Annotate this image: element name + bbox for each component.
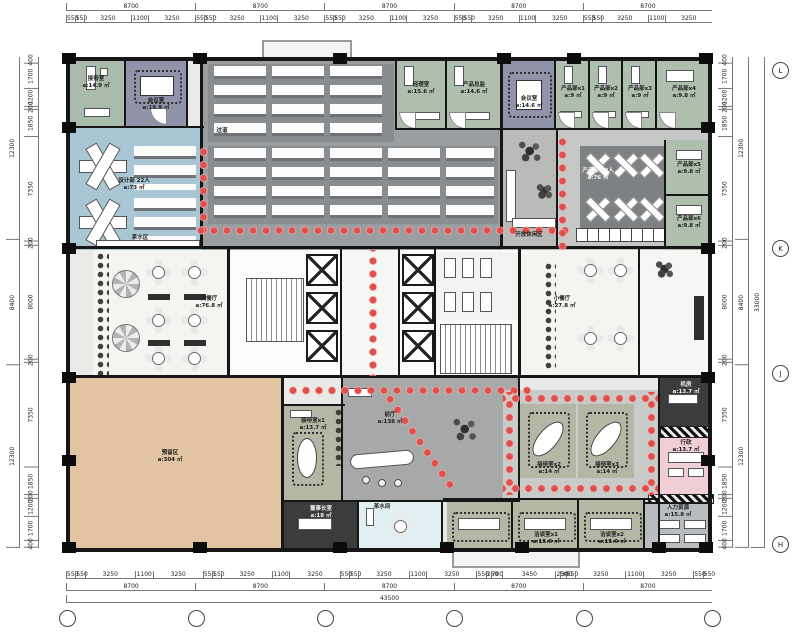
dim-label: 200 (718, 495, 732, 499)
dim-label: 12300 (735, 57, 748, 240)
dim-label: 1700 (24, 64, 38, 89)
round-table (188, 352, 201, 365)
dim-label: 400 (718, 541, 732, 548)
round-table (152, 314, 165, 327)
desk (668, 468, 684, 477)
dim-label: 550 (462, 15, 471, 22)
plant-strip (96, 252, 109, 376)
wall (621, 60, 623, 130)
circulation-dots-west-vertical (197, 146, 210, 236)
dim-label: 550 (333, 15, 342, 22)
room-area: a:76 ㎡ (588, 175, 609, 181)
room-area: a:14.6 ㎡ (516, 103, 543, 109)
dim-label: 3250 (342, 15, 389, 22)
staircase-west (246, 278, 304, 342)
wall (434, 249, 436, 375)
circulation-dots-product-vertical (556, 138, 569, 250)
dim-label: 1100 (390, 15, 407, 22)
room-label-corridor: 过道 (216, 128, 227, 135)
dim-label: 8700 (66, 583, 195, 590)
wall (518, 249, 521, 375)
room-area: a:14 ㎡ (597, 469, 618, 475)
toilet-stall (480, 258, 492, 278)
conference-table (140, 76, 174, 96)
room-label-px3: 产品部x3a:9 ㎡ (628, 86, 652, 100)
chair (362, 476, 370, 484)
dim-label: 550 (75, 571, 84, 578)
dim-label: 1100 (260, 15, 277, 22)
dim-label: 3250 (665, 15, 712, 22)
axis-bubble-H: H (772, 536, 789, 553)
room-name: 会议室 (148, 98, 165, 104)
dim-right-majors: 12300840012300 (735, 57, 749, 548)
dim-label: 43500 (66, 595, 712, 602)
column (62, 243, 76, 254)
wall (357, 500, 359, 548)
wall (445, 60, 447, 130)
dim-label: 550 (340, 571, 349, 578)
desk (598, 66, 607, 84)
column (567, 53, 581, 64)
vip-dots-left (503, 392, 516, 495)
dim-label: 550 (476, 571, 485, 578)
dim-label: 550 (195, 15, 204, 22)
wall (658, 378, 660, 548)
dim-label: 400 (24, 541, 38, 548)
oval-table (297, 438, 317, 478)
sofa (462, 112, 490, 120)
room-area: a:15.6 ㎡ (533, 539, 560, 545)
toilet-stall (480, 292, 492, 312)
room-label-chairman: 董事长室a:18 ㎡ (310, 506, 332, 520)
desk-column (272, 66, 324, 140)
dim-label: 8700 (324, 3, 453, 10)
room-label-server: 机房a:13.7 ㎡ (673, 382, 700, 396)
dim-label: 7350 (24, 137, 38, 242)
column (62, 372, 76, 383)
room-name: 接待室x2 (537, 462, 561, 468)
wall (645, 502, 712, 504)
wall (577, 500, 579, 548)
room-name: 机房 (680, 382, 691, 388)
axis-bubble-K: K (772, 240, 789, 257)
dim-label: 8700 (454, 3, 583, 10)
elevator (306, 330, 338, 362)
room-label-dining-large: 大餐厅a:76.8 ㎡ (196, 296, 223, 310)
dim-label: 3250 (535, 15, 582, 22)
room-name: 产品部 18人 (582, 168, 614, 174)
dim-right-details: 4001700120020018507350200800020073501850… (718, 57, 733, 548)
desk (688, 468, 704, 477)
dim-label: 550 (592, 15, 601, 22)
room-label-px6: 产品部x6a:9.8 ㎡ (677, 216, 701, 230)
room-name: 预留区 (162, 450, 179, 456)
room-label-meeting-a: 会议室a:19.9 ㎡ (143, 98, 170, 112)
plant-cluster (446, 412, 482, 446)
dim-label: 8700 (583, 3, 712, 10)
desk (658, 520, 680, 529)
umbrella-table (112, 324, 140, 352)
floor-plan: 87008700870087008700 5505503250110032505… (0, 0, 800, 644)
room-area: a:14.9 ㎡ (83, 83, 110, 89)
elevator (306, 292, 338, 324)
dim-label: 3250 (148, 15, 195, 22)
column (701, 122, 715, 133)
wall (283, 404, 345, 406)
dim-label: 8700 (583, 583, 712, 590)
room-name: 大餐厅 (201, 296, 218, 302)
dim-label: 7350 (718, 363, 732, 468)
room-area: a:15.8 ㎡ (665, 512, 692, 518)
room-area: a:76.8 ㎡ (196, 303, 223, 309)
dim-label: 1100 (135, 571, 153, 578)
room-name: 小餐厅 (554, 296, 571, 302)
chair (100, 68, 108, 76)
dim-label: 550 (703, 571, 712, 578)
room-area: a:9 ㎡ (631, 93, 648, 99)
room-name: 产品部x6 (677, 216, 701, 222)
dim-label: 8700 (195, 583, 324, 590)
dim-label: 550 (66, 571, 75, 578)
dim-label: 550 (454, 15, 463, 22)
chair (394, 479, 402, 487)
desk (676, 150, 702, 160)
dim-label: 550 (324, 15, 333, 22)
room-name: 产品部x4 (672, 86, 696, 92)
dim-label: 8700 (66, 3, 195, 10)
room-label-px4: 产品部x4a:9.8 ㎡ (672, 86, 696, 100)
column (515, 542, 529, 553)
dim-right-total: 33000 (751, 57, 765, 548)
round-table (152, 352, 165, 365)
column (333, 542, 347, 553)
long-table (524, 518, 566, 530)
room-name: 接待室x1 (301, 418, 325, 424)
dim-label: 1100 (131, 15, 148, 22)
wall (395, 60, 397, 130)
x-desk (612, 152, 638, 178)
column (699, 542, 713, 553)
wall (66, 246, 712, 249)
toilet-stall (444, 258, 456, 278)
desk (564, 66, 573, 84)
room-area: a:14.6 ㎡ (461, 89, 488, 95)
axis-bubble-L: L (772, 62, 789, 79)
room-name: 会议室 (521, 96, 538, 102)
room-label-px2: 产品部x2a:9 ㎡ (594, 86, 618, 100)
room-area: a:15.6 ㎡ (599, 539, 626, 545)
room-area: a:18 ㎡ (311, 513, 332, 519)
room-area: a:13.7 ㎡ (300, 425, 327, 431)
bench (694, 296, 704, 340)
room-name: 人力资源 (667, 505, 689, 511)
column (701, 243, 715, 254)
sofa (414, 112, 440, 120)
round-table (614, 264, 627, 277)
room-area: a:73 ㎡ (124, 185, 145, 191)
column (699, 53, 713, 64)
dim-label: 3250 (85, 571, 135, 578)
dim-label: 3250 (406, 15, 453, 22)
room-area: a:9.8 ㎡ (672, 93, 695, 99)
plant-strip (544, 262, 556, 370)
wall (398, 249, 400, 375)
lounge-bench (184, 340, 206, 346)
wall (124, 60, 126, 126)
room-label-talk2: 洽谈室x2a:15.6 ㎡ (599, 532, 626, 546)
axis-bubble (576, 610, 593, 627)
x-desk (638, 196, 664, 222)
dim-label: 400 (718, 57, 732, 64)
sofa (84, 108, 110, 117)
lounge-bench (148, 294, 170, 300)
room-area: a:27.8 ㎡ (549, 303, 576, 309)
room-area: a:13.7 ㎡ (673, 447, 700, 453)
x-desk (638, 152, 664, 178)
room-label-manager: 经理室a:15.6 ㎡ (408, 82, 435, 96)
room-name: 产品部x1 (561, 86, 585, 92)
room-area: a:304 ㎡ (158, 457, 183, 463)
room-label-px5: 产品部x5a:9.8 ㎡ (677, 162, 701, 176)
room-area: a:19.9 ㎡ (143, 105, 170, 111)
wall (340, 249, 342, 375)
column (62, 122, 76, 133)
dim-left-majors: 12300840012300 (6, 57, 20, 548)
toilet-stall (462, 258, 474, 278)
dim-label: 1100 (625, 571, 643, 578)
room-name: 经理室 (413, 82, 430, 88)
axis-bubble (704, 610, 721, 627)
long-table (458, 518, 500, 530)
wall (588, 60, 590, 130)
dim-label: 1850 (718, 110, 732, 137)
dim-label: 3250 (213, 15, 260, 22)
room-label-dining-small: 小餐厅a:27.8 ㎡ (549, 296, 576, 310)
cabinet-row (576, 228, 666, 242)
wall (638, 249, 640, 375)
cabinet-hatch (660, 426, 712, 438)
wall (66, 375, 712, 378)
wall (443, 498, 658, 500)
vip-dots-bottom (503, 482, 658, 495)
dim-label: 8700 (195, 3, 324, 10)
dim-label: 550 (212, 571, 221, 578)
vip-dots-top (503, 392, 658, 405)
room-area: a:14 ㎡ (539, 469, 560, 475)
round-table (188, 314, 201, 327)
room-label-design: 设计部 22人a:73 ㎡ (118, 178, 150, 192)
dim-label: 550 (566, 571, 575, 578)
dim-label: 12300 (6, 365, 19, 548)
toilet-stall (444, 292, 456, 312)
room-label-leisure: 开放休闲区 (515, 232, 543, 239)
dim-bottom-total: 43500 (66, 591, 712, 603)
round-table (394, 520, 407, 533)
dim-label: 8000 (24, 246, 38, 360)
room-label-px1: 产品部x1a:9 ㎡ (561, 86, 585, 100)
axis-bubble-J: J (772, 365, 789, 382)
dim-label: 3250 (84, 15, 131, 22)
axis-bubble (446, 610, 463, 627)
dim-label: 8700 (324, 583, 453, 590)
wall (655, 60, 657, 130)
dim-label: 1200 (718, 499, 732, 517)
wall (664, 140, 666, 247)
room-name: 产品部x3 (628, 86, 652, 92)
table (666, 70, 694, 82)
room-label-meeting-b: 会议室a:14.6 ㎡ (516, 96, 543, 110)
column (497, 53, 511, 64)
room-label-hr: 人力资源a:15.8 ㎡ (665, 505, 692, 519)
room-area: a:9 ㎡ (564, 93, 581, 99)
dim-label: 700 (491, 571, 503, 578)
desk-column (330, 66, 382, 140)
wall (66, 548, 712, 552)
room-name: 董事长室 (310, 506, 332, 512)
room-label-rx2: 接待室x2a:14 ㎡ (537, 462, 561, 476)
wall (66, 126, 204, 128)
room-label-director: 产品总监a:14.6 ㎡ (461, 82, 488, 96)
plant-cluster (652, 258, 676, 280)
room-label-teabar: 茶水区 (132, 235, 149, 242)
room-name: 产品部x5 (677, 162, 701, 168)
dim-label: 550 (583, 15, 592, 22)
room-name: 接待室x3 (595, 462, 619, 468)
room-label-hall: 前厅a:138 ㎡ (378, 412, 403, 426)
dim-label: 33000 (751, 57, 764, 548)
long-table (590, 518, 632, 530)
dim-label: 1200 (24, 499, 38, 517)
column (193, 542, 207, 553)
dim-label: 8000 (718, 246, 732, 360)
elevator (402, 330, 434, 362)
circulation-dots-top-horizontal (197, 224, 569, 237)
room-name: 过道 (216, 128, 227, 134)
dim-label: 7350 (718, 137, 732, 242)
dim-label: 3250 (153, 571, 203, 578)
axis-bubble (317, 610, 334, 627)
room-name: 设计部 22人 (118, 178, 150, 184)
room-name: 洽谈室x2 (600, 532, 624, 538)
column (701, 372, 715, 383)
room-name: 茶水间 (374, 504, 391, 510)
column (652, 542, 666, 553)
dim-label: 550 (204, 15, 213, 22)
room-area: a:9.8 ㎡ (677, 169, 700, 175)
room-area: a:9 ㎡ (597, 93, 614, 99)
round-table (614, 332, 627, 345)
dim-label: 200 (24, 495, 38, 499)
staircase-east (440, 324, 512, 374)
circulation-dots-hall-horizontal (286, 384, 534, 397)
dim-label: 3450 (502, 571, 555, 578)
circulation-dots-lobby-vertical (366, 250, 380, 376)
dim-label: 8400 (735, 240, 748, 365)
dim-label: 3250 (426, 571, 476, 578)
wall (66, 57, 712, 61)
plant-cluster (534, 182, 554, 200)
column (62, 542, 76, 553)
dim-label: 3250 (601, 15, 648, 22)
vip-dots-right (645, 392, 658, 495)
round-table (188, 266, 201, 279)
room-name: 产品部x2 (594, 86, 618, 92)
dim-label: 3250 (471, 15, 518, 22)
dim-label: 3250 (643, 571, 693, 578)
column (701, 455, 715, 466)
elevator (402, 292, 434, 324)
room-area: a:13.7 ㎡ (673, 389, 700, 395)
dim-label: 1100 (272, 571, 290, 578)
room-label-product-open: 产品部 18人a:76 ㎡ (582, 168, 614, 182)
dim-label: 550 (693, 571, 702, 578)
wall (281, 378, 284, 548)
wall (500, 60, 503, 247)
dim-label: 1100 (648, 15, 665, 22)
elevator (402, 254, 434, 286)
x-desk (612, 196, 638, 222)
dim-label: 3250 (289, 571, 339, 578)
desk (631, 66, 640, 84)
axis-bubble (188, 610, 205, 627)
wall (643, 500, 645, 548)
dim-label: 7350 (24, 363, 38, 468)
round-table (584, 332, 597, 345)
desk-column (330, 148, 382, 222)
elevator (306, 254, 338, 286)
dim-label: 12300 (735, 365, 748, 548)
wall (554, 60, 556, 130)
room-name: 产品总监 (463, 82, 485, 88)
desk-column (272, 148, 324, 222)
curved-bench (506, 170, 516, 222)
column (62, 53, 76, 64)
axis-bubble (59, 610, 76, 627)
dim-label: 12300 (6, 57, 19, 240)
column (62, 455, 76, 466)
dim-label: 1100 (409, 571, 427, 578)
desk (676, 205, 702, 215)
dim-label: 1700 (718, 64, 732, 89)
lounge-bench (148, 340, 170, 346)
dim-label: 550 (349, 571, 358, 578)
round-table (584, 264, 597, 277)
dim-label: 3250 (575, 571, 625, 578)
room-label-pantry: 茶水间 (374, 504, 391, 511)
dim-label: 3250 (358, 571, 408, 578)
dim-label: 400 (24, 57, 38, 64)
room-name: 接待室 (88, 76, 105, 82)
wall (227, 249, 230, 375)
desk-column (214, 148, 266, 222)
wall (283, 500, 520, 502)
room-area: a:15.6 ㎡ (408, 89, 435, 95)
room-name: 开放休闲区 (515, 232, 543, 238)
room-label-reception: 接待室a:14.9 ㎡ (83, 76, 110, 90)
dim-label: 8700 (454, 583, 583, 590)
dim-label: 550 (203, 571, 212, 578)
room-label-admin: 行政a:13.7 ㎡ (673, 440, 700, 454)
dim-label: 550 (66, 15, 75, 22)
desk (290, 410, 312, 418)
desk-column (388, 148, 440, 222)
wall (186, 60, 188, 126)
room-label-reserved: 预留区a:304 ㎡ (158, 450, 183, 464)
dim-left-details: 4001700120020018507350200800020073501850… (24, 57, 39, 548)
room-label-rx3: 接待室x3a:14 ㎡ (595, 462, 619, 476)
dim-label: 1100 (519, 15, 536, 22)
dim-bottom-majors: 87008700870087008700 (66, 579, 712, 591)
